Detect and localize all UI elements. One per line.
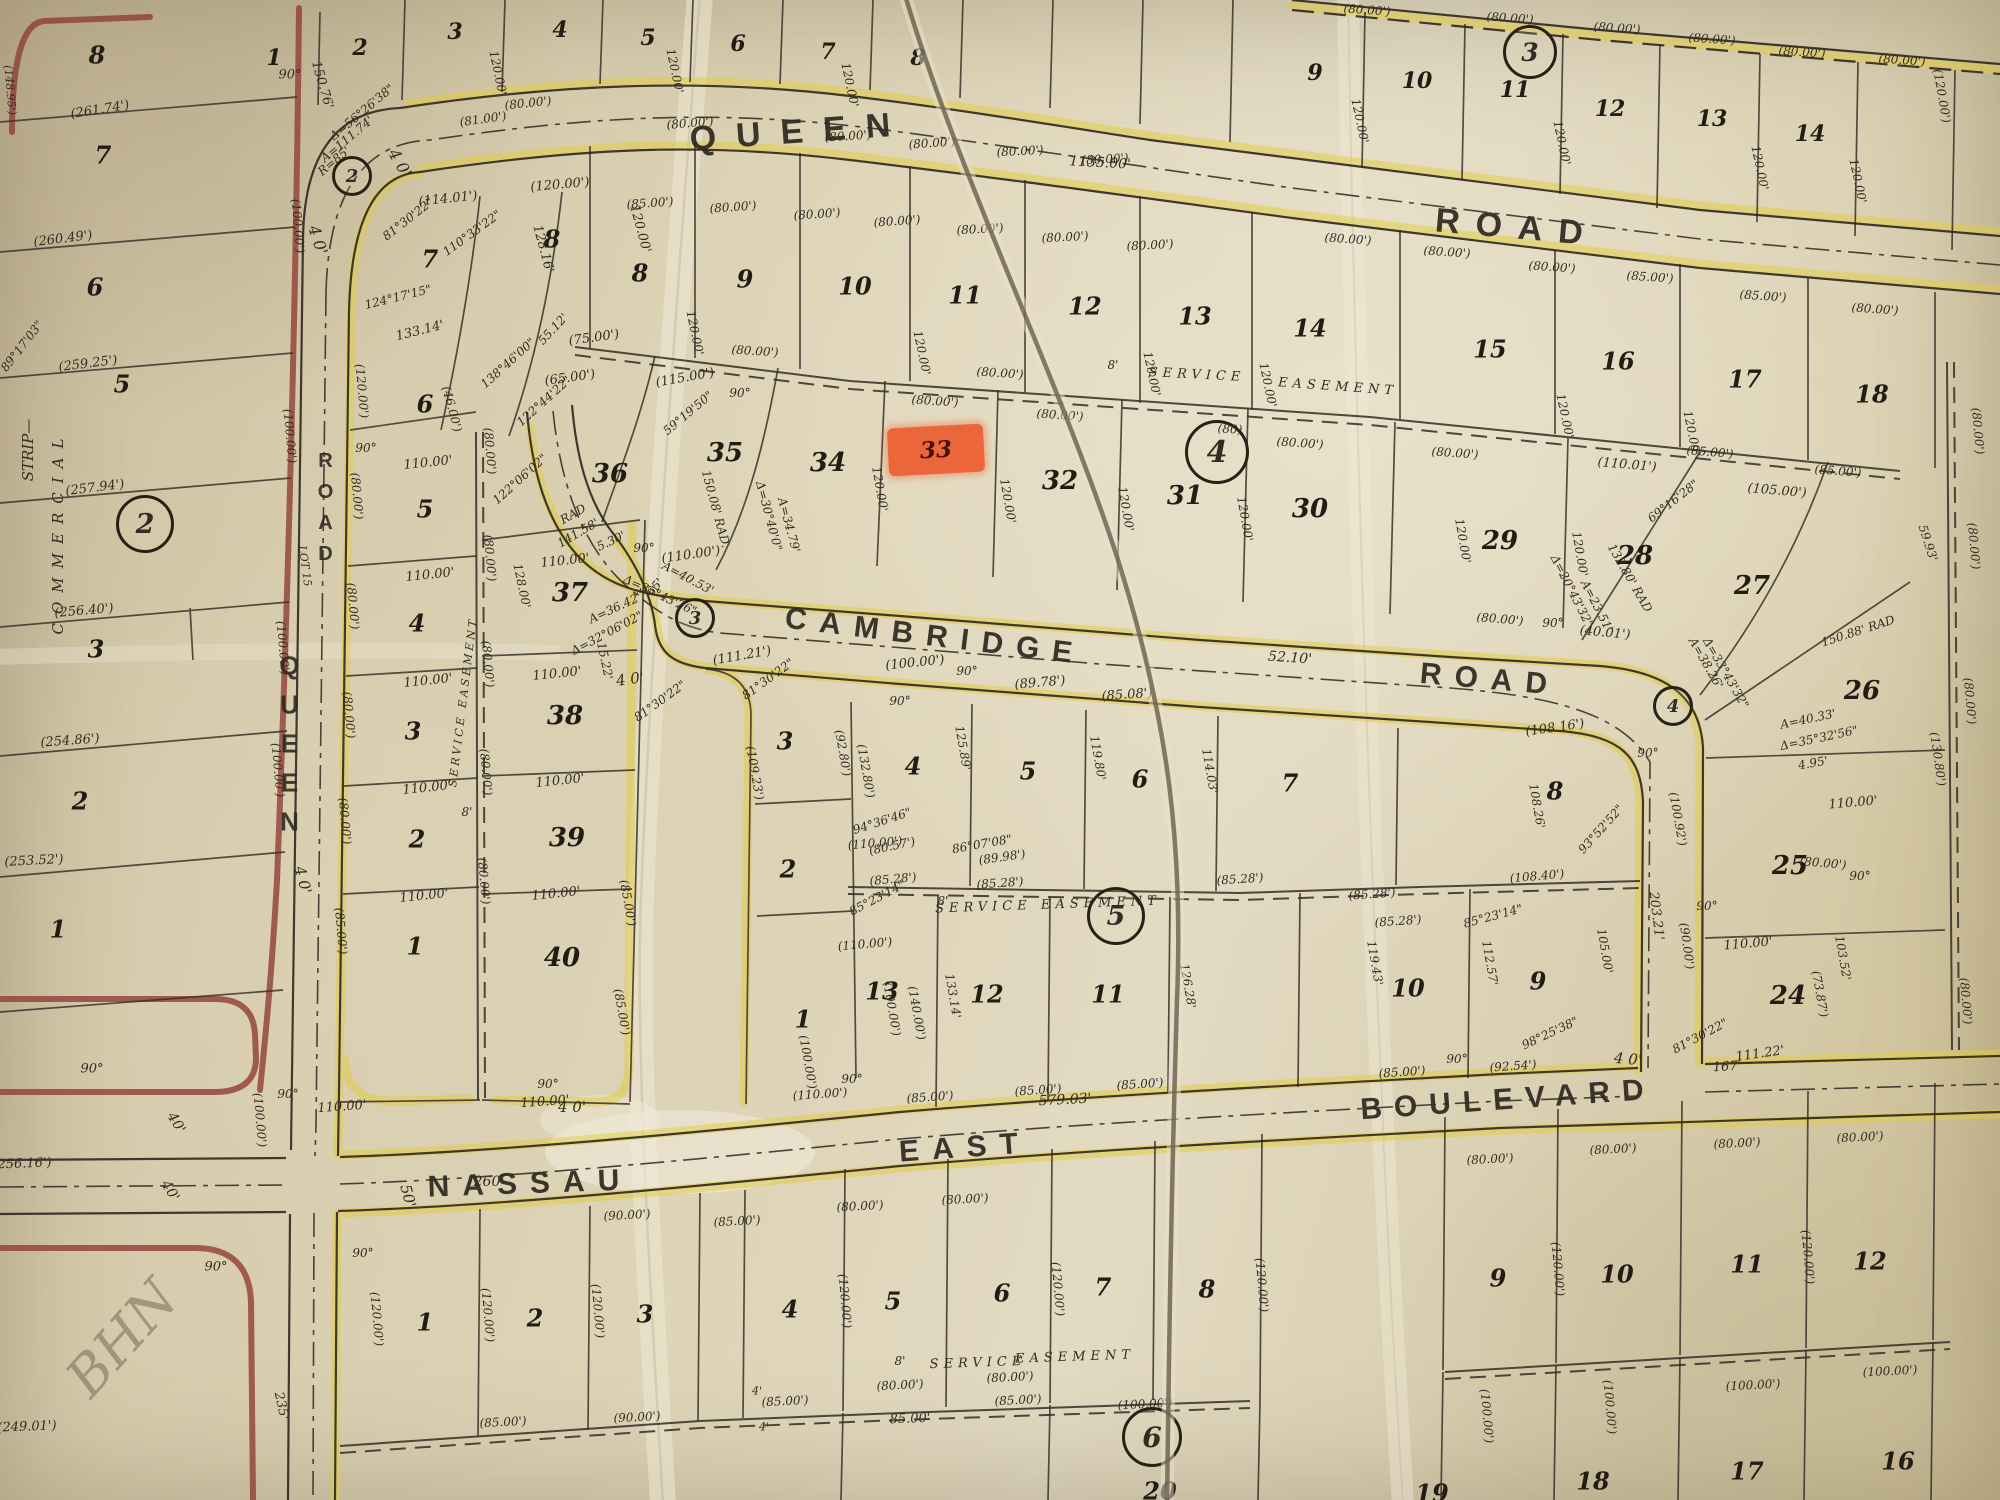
dimension-label: (100.00') <box>1601 1379 1620 1435</box>
dimension-label: 110.00' <box>535 771 585 791</box>
dimension-label: 120.00' <box>838 61 861 108</box>
lot-number: 40 <box>544 943 580 973</box>
dimension-label: (249.01') <box>0 1418 57 1435</box>
dimension-label: 105.00' <box>1594 927 1616 974</box>
dimension-label: (80.00') <box>793 205 841 222</box>
dimension-label: (85.00') <box>1814 462 1862 480</box>
dimension-label: (100.00') <box>251 1092 270 1148</box>
dimension-label: 150.08' RAD. <box>699 469 733 550</box>
dimension-label: (80.00') <box>1343 1 1391 18</box>
dimension-label: (80.00') <box>1593 19 1641 36</box>
dimension-label: (80.00') <box>1713 1135 1761 1151</box>
dimension-label: 120.00' <box>1846 157 1869 204</box>
lot-number: 9 <box>737 265 754 294</box>
dimension-label: (85.28') <box>1348 885 1396 902</box>
dimension-label: (80.00') <box>1878 51 1926 68</box>
lot-number: 8 <box>632 259 649 288</box>
dimension-label: (111.21') <box>712 643 773 668</box>
dimension-label: 110.00' <box>403 671 453 691</box>
dimension-label: 40' <box>157 1178 182 1205</box>
lot-number: 8 <box>1547 777 1564 806</box>
lot-number: 5 <box>885 1287 902 1316</box>
block-number-circle: 2 <box>116 495 174 553</box>
dimension-label: 120.00' <box>1115 485 1137 532</box>
dimension-label: (256.16') <box>0 1155 52 1172</box>
dimension-label: 90° <box>956 664 977 678</box>
dimension-label: (80.00') <box>1466 1151 1514 1167</box>
road-name: ROAD <box>1419 657 1562 703</box>
dimension-label: (80.00') <box>1486 9 1534 26</box>
lot-number: 1 <box>795 1005 812 1034</box>
lot-number: 30 <box>1292 494 1328 524</box>
dimension-label: 203.21' <box>1646 891 1667 942</box>
dimension-label: 94°36'46" <box>851 805 913 837</box>
dimension-label: (85.08') <box>1101 686 1153 705</box>
dimension-label: 110°33'22" <box>440 207 503 258</box>
dimension-label: (85.00') <box>626 194 674 211</box>
dimension-label: (80.00') <box>481 534 499 582</box>
dimension-label: (120.00') <box>479 1287 498 1343</box>
road-name: QUEEN <box>688 105 911 159</box>
dimension-label: 90° <box>80 1062 103 1077</box>
dimension-label: (120.00') <box>1799 1229 1818 1285</box>
lot-number: 8 <box>1199 1275 1216 1304</box>
dimension-label: (259.25') <box>58 353 119 375</box>
dimension-label: 4 0' <box>615 668 645 690</box>
handwritten-note: BHN <box>54 1267 191 1409</box>
dimension-label: (110.01') <box>1597 455 1657 475</box>
dimension-label: 81°30'22" <box>1670 1016 1730 1057</box>
dimension-label: (130.80') <box>1927 731 1948 787</box>
dimension-label: (80.00') <box>1961 677 1979 725</box>
dimension-label: (85.00') <box>1116 1075 1164 1092</box>
dimension-label: 120.00' <box>1234 495 1256 542</box>
dimension-label: (80.00') <box>1423 243 1471 260</box>
dimension-label: 85°23'14" <box>1462 901 1524 930</box>
dimension-label: 120.00' <box>663 47 686 94</box>
dimension-label: (105.00') <box>1747 481 1807 501</box>
dimension-label: (100.00') <box>281 408 300 464</box>
dimension-label: (75.00') <box>568 327 621 349</box>
dimension-label: (85.00') <box>479 1414 527 1430</box>
dimension-label: (80.00') <box>477 748 495 796</box>
dimension-label: (80.00') <box>731 342 779 359</box>
dimension-label: (80.00') <box>956 221 1004 237</box>
lot-number: 5 <box>114 370 131 399</box>
dimension-label: (80.00') <box>1324 230 1372 247</box>
dimension-label: 90° <box>277 1087 298 1101</box>
dimension-label: 125.89' <box>952 724 974 771</box>
dimension-label: (80) <box>1217 421 1243 437</box>
lot-number: 2 <box>527 1304 544 1333</box>
dimension-label: (261.74') <box>70 98 131 122</box>
dimension-label: (110.00') <box>837 935 893 954</box>
dimension-label: (80.00') <box>479 640 497 688</box>
dimension-label: 120.00' <box>1569 530 1591 577</box>
lot-number: 1 <box>417 1308 434 1337</box>
lot-number: 2 <box>409 825 426 854</box>
dimension-label: (120.00') <box>589 1283 608 1339</box>
dimension-label: (80.00') <box>1276 434 1324 451</box>
dimension-label: (85.28') <box>1216 870 1264 887</box>
lot-number: 27 <box>1734 571 1770 601</box>
dimension-label: 126.28' <box>1177 962 1199 1009</box>
lot-number: 24 <box>1770 981 1806 1011</box>
dimension-label: (100.00') <box>1117 1396 1172 1413</box>
dimension-label: 4' <box>759 1421 769 1434</box>
dimension-label: (100.00') <box>1478 1388 1497 1444</box>
dimension-label: 120.00' <box>1550 119 1573 166</box>
dimension-label: 15.22' <box>594 641 616 681</box>
lot-number: 5 <box>640 25 655 51</box>
dimension-label: 4.95' <box>1797 753 1829 772</box>
dimension-label: (46.00') <box>439 384 465 433</box>
dimension-label: 90° <box>633 541 654 555</box>
dimension-label: 4 0' <box>558 1098 586 1116</box>
lot-number: 16 <box>1881 1447 1914 1476</box>
dimension-label: (109.23') <box>743 745 766 801</box>
dimension-label: COMMERCIAL <box>49 430 67 635</box>
dimension-label: (80.00') <box>911 392 959 409</box>
dimension-label: (90.00') <box>603 1207 651 1223</box>
lot-number: 10 <box>838 272 871 301</box>
lot-number: 39 <box>549 823 585 853</box>
dimension-label: 52.10' <box>1268 648 1313 667</box>
lot-number: 6 <box>1132 765 1149 794</box>
dimension-label: (80.00') <box>1836 1129 1884 1145</box>
dimension-label: (85.00') <box>611 988 633 1037</box>
dimension-label: 90° <box>1696 899 1717 913</box>
dimension-label: SERVICE <box>1148 365 1245 385</box>
dimension-label: 120.00' <box>1553 392 1576 439</box>
dimension-label: 114.03' <box>1199 747 1221 794</box>
block-number-circle: 3 <box>1503 25 1557 79</box>
dimension-label: 260 <box>474 1174 501 1190</box>
map-labels: QUEENROAD1135.00'CAMBRIDGEROAD52.10'NASS… <box>0 0 2000 1500</box>
lot-number: 38 <box>547 701 583 731</box>
lot-number: 7 <box>1095 1273 1112 1302</box>
lot-number: 6 <box>87 273 104 302</box>
dimension-label: 110.00' <box>1828 793 1878 812</box>
dimension-label: 167' <box>1712 1059 1741 1075</box>
dimension-label: (80.00') <box>1965 522 1983 570</box>
dimension-label: (80.00') <box>1126 237 1174 253</box>
dimension-label: 69°16'28" <box>1645 477 1701 525</box>
dimension-label: 90° <box>889 694 910 708</box>
dimension-label: (85.00') <box>617 879 639 928</box>
dimension-label: 5.30' <box>594 528 627 553</box>
dimension-label: (80.00') <box>1431 444 1479 461</box>
dimension-label: 4' <box>752 1385 762 1398</box>
dimension-label: (80.00') <box>481 427 499 475</box>
lot-number: 7 <box>95 141 112 170</box>
dimension-label: (80.00') <box>709 198 757 215</box>
dimension-label: (100.92') <box>1666 791 1689 847</box>
dimension-label: 120.00' <box>1348 97 1371 144</box>
lot-number: 3 <box>637 1300 654 1329</box>
dimension-label: (80.00') <box>1081 151 1129 167</box>
dimension-label: (85.28') <box>976 874 1024 891</box>
dimension-label: (80.00') <box>1476 610 1524 628</box>
dimension-label: (92.54') <box>1489 1057 1537 1074</box>
dimension-label: 4 0' <box>304 223 331 257</box>
lot-number: 7 <box>422 245 439 274</box>
dimension-label: (100.00') <box>796 1034 819 1090</box>
dimension-label: 119.80' <box>1087 734 1109 781</box>
dimension-label: (80.00') <box>1778 43 1826 60</box>
dimension-label: (85.00') <box>1626 268 1674 285</box>
dimension-label: 120.00' <box>1452 517 1474 564</box>
dimension-label: (80.00') <box>1589 1141 1637 1157</box>
lot-number: 29 <box>1482 526 1518 556</box>
lot-number: 3 <box>777 727 794 756</box>
dimension-label: (108.16') <box>1525 716 1586 739</box>
dimension-label: (100.00') <box>880 981 903 1037</box>
dimension-label: EASEMENT <box>1278 375 1399 398</box>
dimension-label: 110.00' <box>402 778 452 798</box>
dimension-label: (100.00') <box>1725 1377 1780 1394</box>
dimension-label: 120.00' <box>869 465 891 512</box>
lot-number: 9 <box>1490 1264 1507 1293</box>
dimension-label: (85.00') <box>1378 1063 1426 1080</box>
dimension-label: (80.00') <box>1036 406 1084 423</box>
dimension-label: (85.00') <box>994 1392 1042 1408</box>
dimension-label: 120.00' <box>486 49 509 96</box>
dimension-label: 133.14' <box>942 972 964 1019</box>
dimension-label: (80.00') <box>1851 300 1899 317</box>
dimension-label: (132.80') <box>854 743 877 799</box>
block-number-circle: 4 <box>1653 686 1693 726</box>
dimension-label: 98°25'38" <box>1520 1014 1581 1052</box>
dimension-label: 150.88' RAD <box>1819 613 1896 650</box>
dimension-label: 120.00' <box>1256 361 1279 408</box>
dimension-label: 90° <box>1637 746 1658 760</box>
dimension-label: (81.00') <box>459 109 508 129</box>
highlighted-lot-number: 33 <box>919 436 952 465</box>
lot-number: 3 <box>405 717 422 746</box>
dimension-label: 133.14' <box>394 318 445 344</box>
lot-number: 34 <box>810 448 846 478</box>
dimension-label: (85.00') <box>332 907 350 955</box>
dimension-label: (73.87') <box>1809 970 1831 1019</box>
dimension-label: 235' <box>271 1391 292 1422</box>
dimension-label: 8' <box>462 805 473 819</box>
dimension-label: (92.80') <box>832 729 854 778</box>
lot-number: 9 <box>1307 60 1322 86</box>
lot-number: 13 <box>1178 302 1211 331</box>
dimension-label: 110.00' <box>532 664 582 684</box>
dimension-label: 120.00' <box>1748 144 1771 191</box>
dimension-label: 4 0' <box>1613 1049 1642 1069</box>
dimension-label: (80.00') <box>941 1191 989 1207</box>
dimension-label: (80.00') <box>996 143 1044 159</box>
dimension-label: (85.00') <box>713 1213 761 1229</box>
dimension-label: (120.00') <box>1930 68 1953 124</box>
dimension-label: (120.00') <box>1253 1257 1272 1313</box>
lot-number: 1 <box>50 915 67 944</box>
dimension-label: 110.00' <box>540 551 590 571</box>
lot-number: 6 <box>417 390 434 419</box>
lot-number: 12 <box>1853 1247 1886 1276</box>
dimension-label: (80.00') <box>873 212 921 229</box>
dimension-label: 90° <box>352 1246 373 1260</box>
dimension-label: (80.00') <box>336 797 354 845</box>
dimension-label: 120.00' <box>997 477 1019 524</box>
lot-number: 9 <box>1530 967 1547 996</box>
dimension-label: (80.00') <box>504 94 552 113</box>
lot-number: 3 <box>88 635 105 664</box>
lot-number: 2 <box>780 855 797 884</box>
dimension-label: (100.00') <box>289 198 308 254</box>
dimension-label: (80.00') <box>1957 977 1975 1025</box>
dimension-label: 110.00' <box>1723 934 1773 953</box>
dimension-label: (254.86') <box>40 731 100 750</box>
dimension-label: 110.00' <box>399 886 449 906</box>
lot-number: 26 <box>1844 676 1880 706</box>
dimension-label: (80.00') <box>348 472 366 520</box>
dimension-label: (120.00') <box>1049 1261 1068 1317</box>
dimension-label: (80.00') <box>1528 258 1576 275</box>
lot-number: 36 <box>592 459 628 489</box>
dimension-label: (120.00') <box>836 1273 855 1329</box>
lot-number: 10 <box>1402 68 1433 94</box>
dimension-label: 90° <box>1446 1052 1467 1066</box>
dimension-label: (120.00') <box>368 1291 387 1347</box>
lot-number: 20 <box>1143 1477 1176 1500</box>
dimension-label: (110.00') <box>661 543 722 566</box>
lot-number: 10 <box>1391 974 1424 1003</box>
dimension-label: (80.00') <box>475 857 493 905</box>
lot-number: 17 <box>1730 1457 1763 1486</box>
dimension-label: (85.28') <box>1374 912 1422 929</box>
dimension-label: (110.00') <box>792 1085 847 1103</box>
dimension-label: (90.00') <box>1677 922 1697 971</box>
dimension-label: (80.00') <box>976 364 1024 381</box>
dimension-label: (80.00') <box>340 691 358 739</box>
lot-number: 7 <box>820 39 835 65</box>
dimension-label: 8' <box>895 1354 906 1368</box>
dimension-label: 90° <box>729 386 750 400</box>
dimension-label: 110.00' <box>531 884 581 904</box>
lot-number: 5 <box>417 495 434 524</box>
lot-number: 16 <box>1601 347 1634 376</box>
dimension-label: (120.00') <box>530 175 590 195</box>
dimension-label: (80.00') <box>986 1369 1034 1385</box>
lot-number: 4 <box>552 17 567 43</box>
lot-number: 6 <box>730 31 745 57</box>
lot-number: 37 <box>552 578 588 608</box>
dimension-label: (253.52') <box>4 852 64 870</box>
lot-number: 6 <box>994 1279 1011 1308</box>
dimension-label: (85.00') <box>1739 287 1787 304</box>
dimension-label: 128.00' <box>510 562 533 609</box>
dimension-label: 40' <box>163 1110 188 1137</box>
dimension-label: 112.57' <box>1479 939 1501 986</box>
dimension-label: (85.00') <box>761 1393 809 1409</box>
dimension-label: (85.00') <box>1686 443 1734 461</box>
dimension-label: (120.00') <box>1549 1241 1568 1297</box>
dimension-label: SERVICE EASEMENT <box>446 616 480 788</box>
plat-map: QUEENROAD1135.00'CAMBRIDGEROAD52.10'NASS… <box>0 0 2000 1500</box>
dimension-label: 138°46'00" <box>478 335 538 391</box>
dimension-label: 111.22' <box>1735 1043 1786 1065</box>
dimension-label: 108.26' <box>1526 782 1548 829</box>
dimension-label: 4 0' <box>384 145 415 180</box>
dimension-label: 119.43' <box>1364 939 1386 986</box>
lot-number: 14 <box>1293 314 1326 343</box>
dimension-label: (100.00') <box>885 652 945 673</box>
dimension-label: (80.00') <box>1041 229 1089 245</box>
dimension-label: (80.00') <box>1969 407 1987 455</box>
dimension-label: 90° <box>537 1077 558 1091</box>
dimension-label: (80.00') <box>1688 30 1736 47</box>
lot-number: 4 <box>905 752 922 781</box>
dimension-label: 8' <box>1108 358 1119 372</box>
dimension-label: (80.00') <box>344 582 362 630</box>
lot-number: 11 <box>1730 1250 1763 1279</box>
dimension-label: 110.00' <box>405 565 455 585</box>
dimension-label: (80.00') <box>908 134 956 151</box>
dimension-label: 103.52' <box>1832 934 1854 981</box>
dimension-label: 89°17'03" <box>0 318 46 374</box>
lot-number: 3 <box>447 19 462 45</box>
dimension-label: (90.00') <box>613 1409 661 1425</box>
lot-number: 10 <box>1600 1260 1633 1289</box>
dimension-label: 120.00' <box>910 329 933 376</box>
dimension-label: (100.00') <box>1862 1363 1917 1380</box>
lot-number: 35 <box>707 438 743 468</box>
lot-number: 32 <box>1042 466 1078 496</box>
dimension-label: (148.95') <box>1 64 18 115</box>
lot-number: 17 <box>1728 365 1761 394</box>
dimension-label: 110.00' <box>403 453 453 473</box>
dimension-label: 90° <box>1542 616 1563 630</box>
lot-number: 8 <box>910 45 925 71</box>
lot-number: 2 <box>72 787 89 816</box>
lot-number: 1 <box>266 45 281 71</box>
road-name: EAST <box>898 1126 1032 1169</box>
road-name: NASSAU <box>427 1163 633 1204</box>
lot-number: 31 <box>1167 481 1203 511</box>
road-name: BOULEVARD <box>1359 1073 1656 1128</box>
lot-number: 11 <box>1500 77 1531 103</box>
dimension-label: 90° <box>355 441 376 455</box>
dimension-label: LOT 15 <box>296 545 315 588</box>
lot-number: 18 <box>1855 380 1888 409</box>
dimension-label: (85.00') <box>906 1088 954 1105</box>
dimension-label: STRIP— <box>19 419 37 482</box>
dimension-label: 81°30'22" <box>380 195 436 243</box>
road-name-vertical: ROAD <box>314 450 337 574</box>
lot-number: 18 <box>1576 1467 1609 1496</box>
dimension-label: 90° <box>278 68 301 83</box>
dimension-label: (108.40') <box>1509 867 1565 886</box>
lot-number: 12 <box>1068 292 1101 321</box>
dimension-label: (80.00') <box>836 1198 884 1214</box>
dimension-label: (80.00') <box>876 1377 924 1393</box>
dimension-label: 93°52'52" <box>1576 802 1627 856</box>
dimension-label: (89.78') <box>1014 673 1066 692</box>
dimension-label: 124°17'15" <box>363 282 433 312</box>
dimension-label: (120.00') <box>353 363 372 419</box>
lot-number: 4 <box>782 1295 799 1324</box>
dimension-label: 150.76' <box>308 59 336 110</box>
dimension-label: 4 0' <box>291 864 316 896</box>
lot-number: 12 <box>1595 96 1626 122</box>
dimension-label: (260.49') <box>33 228 94 250</box>
dimension-label: 55.12' <box>535 310 571 347</box>
lot-number: 14 <box>1795 121 1826 147</box>
